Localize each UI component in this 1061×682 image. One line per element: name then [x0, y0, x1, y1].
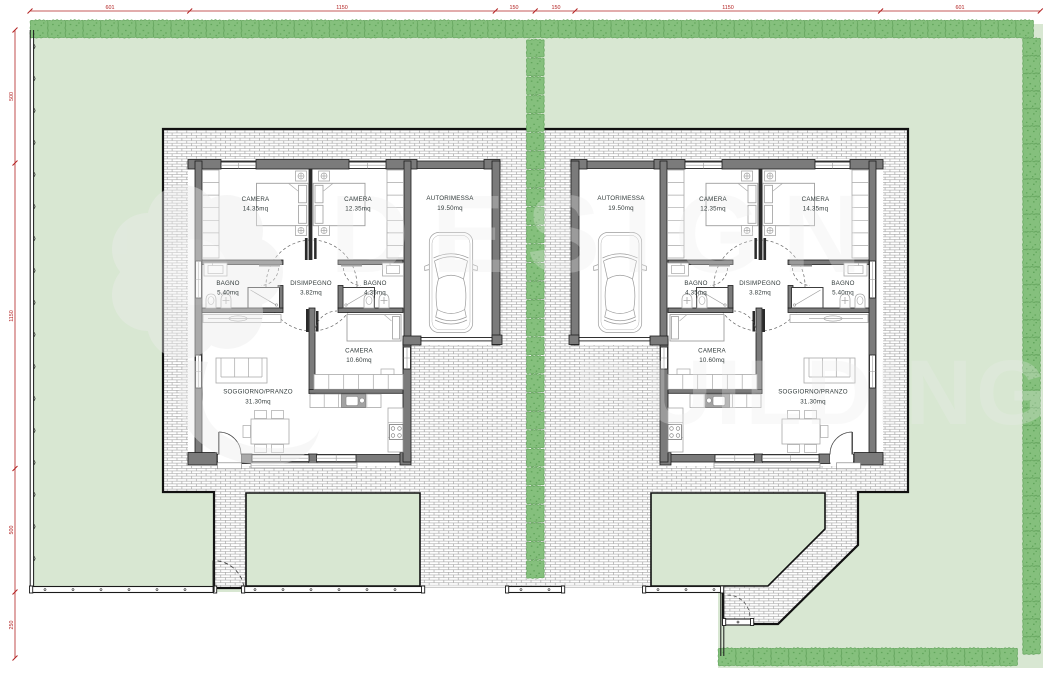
svg-text:1150: 1150	[336, 5, 348, 11]
svg-text:AUTORIMESSA: AUTORIMESSA	[597, 195, 645, 202]
svg-text:DISIMPEGNO: DISIMPEGNO	[739, 280, 781, 287]
svg-text:1150: 1150	[722, 5, 734, 11]
svg-text:CAMERA: CAMERA	[699, 196, 727, 203]
svg-text:601: 601	[106, 5, 115, 11]
svg-text:5.40mq: 5.40mq	[832, 290, 854, 297]
svg-text:DISIMPEGNO: DISIMPEGNO	[290, 280, 332, 287]
svg-text:150: 150	[552, 5, 561, 11]
svg-text:BAGNO: BAGNO	[831, 280, 854, 287]
svg-text:4.35mq: 4.35mq	[685, 290, 707, 297]
svg-text:4.35mq: 4.35mq	[364, 290, 386, 297]
svg-text:DESIGN: DESIGN	[330, 173, 884, 296]
svg-text:10.60mq: 10.60mq	[699, 357, 725, 364]
svg-text:14.35mq: 14.35mq	[803, 206, 829, 213]
svg-text:19.50mq: 19.50mq	[437, 205, 463, 212]
svg-text:601: 601	[956, 5, 965, 11]
svg-text:BAGNO: BAGNO	[216, 280, 239, 287]
svg-text:CAMERA: CAMERA	[698, 348, 726, 355]
svg-text:CAMERA: CAMERA	[344, 196, 372, 203]
svg-text:31.30mq: 31.30mq	[245, 399, 271, 406]
svg-text:500: 500	[9, 92, 15, 101]
svg-text:10.60mq: 10.60mq	[346, 357, 372, 364]
svg-text:BAGNO: BAGNO	[363, 280, 386, 287]
svg-text:CAMERA: CAMERA	[345, 348, 373, 355]
svg-text:CAMERA: CAMERA	[242, 196, 270, 203]
svg-text:19.50mq: 19.50mq	[608, 205, 634, 212]
svg-text:5.40mq: 5.40mq	[217, 290, 239, 297]
svg-text:250: 250	[9, 621, 15, 630]
svg-text:SOGGIORNO/PRANZO: SOGGIORNO/PRANZO	[778, 389, 848, 396]
svg-text:SOGGIORNO/PRANZO: SOGGIORNO/PRANZO	[223, 389, 293, 396]
svg-text:1150: 1150	[9, 310, 15, 322]
svg-text:500: 500	[9, 526, 15, 535]
svg-text:12.35mq: 12.35mq	[700, 206, 726, 213]
svg-text:AUTORIMESSA: AUTORIMESSA	[426, 195, 474, 202]
svg-text:BAGNO: BAGNO	[684, 280, 707, 287]
svg-text:14.35mq: 14.35mq	[243, 206, 269, 213]
svg-text:12.35mq: 12.35mq	[345, 206, 371, 213]
svg-text:3.82mq: 3.82mq	[300, 290, 322, 297]
svg-text:CAMERA: CAMERA	[802, 196, 830, 203]
svg-text:3.82mq: 3.82mq	[749, 290, 771, 297]
svg-text:150: 150	[510, 5, 519, 11]
svg-text:31.30mq: 31.30mq	[800, 399, 826, 406]
